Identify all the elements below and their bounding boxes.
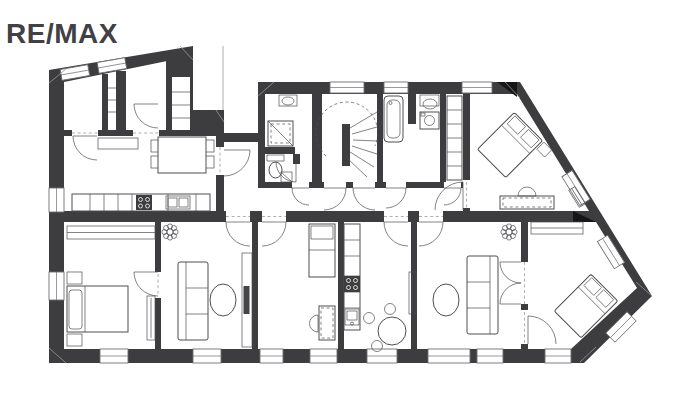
window-bottom-3	[260, 349, 283, 363]
wall-storage-slot	[102, 74, 108, 130]
gap-bath-door	[386, 182, 406, 188]
floor-plan-drawing	[0, 0, 684, 404]
dining-set	[151, 137, 214, 173]
stove	[136, 195, 152, 210]
window-top-1	[330, 82, 364, 93]
tv	[244, 286, 250, 314]
window-bottom-7	[477, 349, 503, 363]
single-bed	[309, 224, 335, 277]
gap-stair-door-right	[353, 182, 375, 188]
gap-wc-door	[292, 182, 309, 188]
wall-bath-stub	[408, 94, 416, 124]
wall-hall-closet	[166, 60, 172, 130]
window-top-2	[384, 82, 408, 93]
wall-wc-partition-v	[293, 154, 300, 164]
window-bottom-2	[193, 349, 221, 363]
stove	[344, 276, 360, 292]
sofa	[467, 256, 498, 334]
window-bottom-6	[428, 349, 470, 363]
window-bottom-1	[100, 349, 128, 363]
window-bottom-8	[545, 349, 571, 363]
room-shower-wc	[265, 94, 312, 182]
window-top-3	[462, 82, 492, 93]
gap-bedroom-se-door	[521, 310, 528, 344]
window-bottom-5	[367, 349, 397, 363]
wall-slot-hall	[116, 71, 126, 130]
round-dining-table	[378, 317, 406, 345]
window-left-1	[49, 188, 64, 212]
dining-table	[158, 137, 206, 173]
wall-wc-partition-h	[265, 147, 295, 154]
window-left-2	[49, 272, 64, 300]
sofa	[178, 262, 208, 340]
gap-stair-door-left	[324, 182, 346, 188]
window-bottom-4	[310, 349, 337, 363]
floor-plan-page: RE/MAX	[0, 0, 684, 404]
